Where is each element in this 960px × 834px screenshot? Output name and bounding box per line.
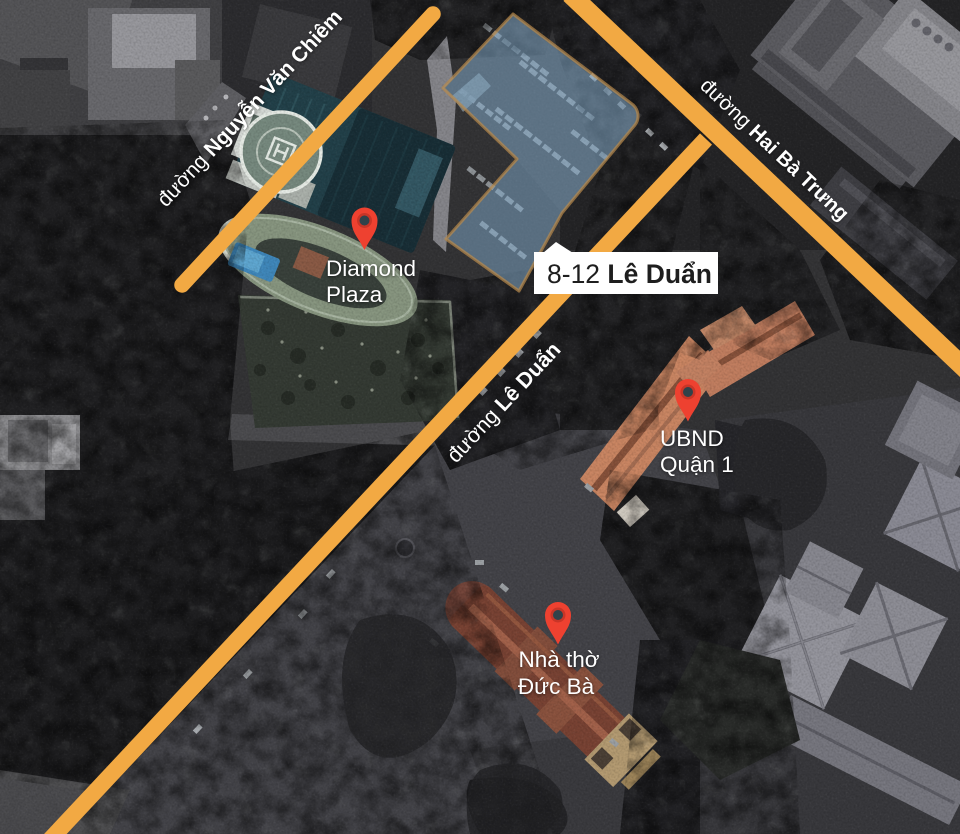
svg-text:Đức Bà: Đức Bà bbox=[518, 674, 595, 699]
svg-text:Diamond: Diamond bbox=[326, 256, 416, 281]
svg-text:Quận 1: Quận 1 bbox=[660, 452, 734, 477]
svg-text:Plaza: Plaza bbox=[326, 282, 383, 307]
svg-text:Nhà thờ: Nhà thờ bbox=[518, 647, 599, 672]
svg-text:8-12 Lê Duẩn: 8-12 Lê Duẩn bbox=[547, 259, 712, 289]
svg-text:UBND: UBND bbox=[660, 426, 724, 451]
